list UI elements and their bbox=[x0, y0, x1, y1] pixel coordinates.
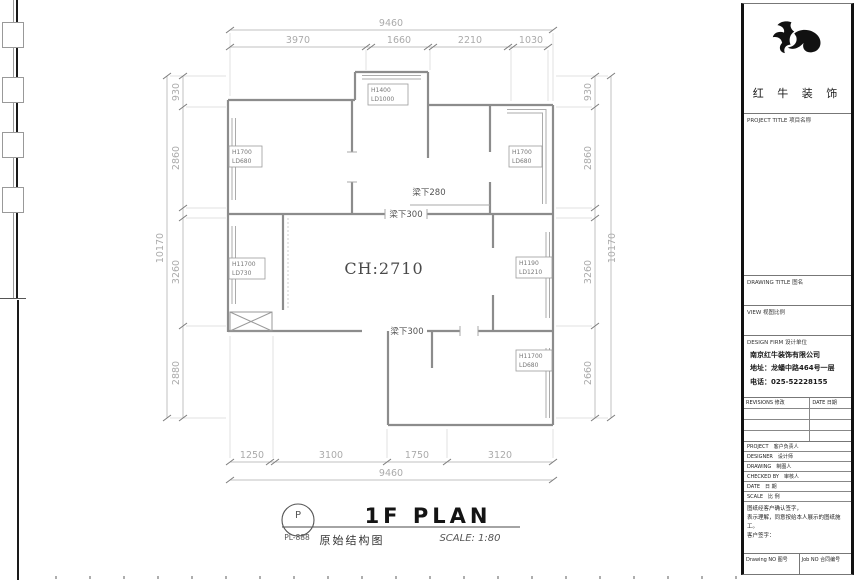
job-no-label: Job NO 合同编号 bbox=[800, 554, 851, 574]
beam-label-300-middle: 梁下300 bbox=[389, 210, 422, 220]
shaft-box bbox=[230, 312, 272, 331]
scale-label: SCALE: 1:80 bbox=[439, 533, 500, 544]
window-tag: H11700 LD680 bbox=[516, 350, 552, 371]
design-firm-label: DESIGN FIRM 设计单位 bbox=[744, 336, 851, 346]
note-line: 客户签字： bbox=[747, 532, 848, 541]
window-tag-height: H1190 bbox=[519, 260, 539, 267]
revision-row bbox=[744, 409, 851, 420]
dim-bottom-seg: 3100 bbox=[319, 450, 343, 461]
revisions-date-header: DATE 日期 bbox=[810, 398, 851, 408]
beam-edges bbox=[347, 152, 490, 336]
callout-letter: P bbox=[295, 510, 301, 521]
view-section: VIEW 视图比例 bbox=[744, 306, 851, 336]
drawing-no-label: Drawing NO 图号 bbox=[744, 554, 800, 574]
dim-bottom-seg: 3120 bbox=[488, 450, 512, 461]
dim-bottom-seg: 1250 bbox=[240, 450, 264, 461]
bull-logo-icon bbox=[770, 20, 826, 62]
dim-top-seg: 3970 bbox=[286, 35, 310, 46]
revision-row bbox=[744, 431, 851, 441]
dim-bottom-total: 9460 bbox=[379, 468, 403, 479]
dim-bottom-seg: 1750 bbox=[405, 450, 429, 461]
row-label-zh: 审核人 bbox=[784, 473, 799, 480]
dim-right-seg: 2860 bbox=[583, 146, 594, 170]
row-scale: SCALE 比 例 bbox=[744, 492, 851, 502]
drawing-name: 原始结构图 bbox=[320, 533, 385, 547]
window-tag-width: LD1000 bbox=[371, 96, 394, 103]
dim-left-seg: 2880 bbox=[171, 361, 182, 385]
row-label-en: SCALE bbox=[747, 494, 763, 500]
revision-row bbox=[744, 420, 851, 431]
window-tag-width: LD730 bbox=[232, 270, 252, 277]
company-name: 南京红牛装饰有限公司 bbox=[744, 346, 851, 360]
revisions-header-row: REVISIONS 修改 DATE 日期 bbox=[744, 398, 851, 409]
note-line: 图纸经客户确认签字， bbox=[747, 505, 848, 514]
window-tag: H11700 LD730 bbox=[229, 258, 265, 279]
footer-row: Drawing NO 图号 Job NO 合同编号 bbox=[744, 554, 851, 574]
dim-right-seg: 3260 bbox=[583, 260, 594, 284]
row-project: PROJECT 客户负责人 bbox=[744, 442, 851, 452]
plan-title: 1F PLAN bbox=[365, 504, 492, 528]
row-checked-by: CHECKED BY 审核人 bbox=[744, 472, 851, 482]
ceiling-height-label: CH:2710 bbox=[344, 259, 423, 278]
dim-left-seg: 2860 bbox=[171, 146, 182, 170]
row-label-zh: 客户负责人 bbox=[774, 443, 799, 450]
project-title-label: PROJECT TITLE 项目名称 bbox=[744, 114, 851, 124]
row-designer: DESIGNER 设计师 bbox=[744, 452, 851, 462]
row-label-en: DESIGNER bbox=[747, 454, 773, 460]
row-drawing: DRAWING 制图人 bbox=[744, 462, 851, 472]
window-tag: H1190 LD1210 bbox=[516, 257, 552, 278]
company-address: 地址：龙蟠中路464号一层 bbox=[744, 360, 851, 374]
dim-top-seg: 2210 bbox=[458, 35, 482, 46]
window-tag-height: H11700 bbox=[519, 353, 543, 360]
beam-label-300-bottom: 梁下300 bbox=[390, 327, 423, 337]
floor-plan: 9460 3970 1660 2210 1030 930 2860 3260 2… bbox=[0, 0, 740, 580]
row-label-zh: 日 期 bbox=[765, 483, 777, 490]
row-label-en: PROJECT bbox=[747, 444, 769, 450]
row-date: DATE 日 期 bbox=[744, 482, 851, 492]
dim-top-total: 9460 bbox=[379, 18, 403, 29]
beam-label-280: 梁下280 bbox=[412, 188, 445, 198]
window-tag-width: LD680 bbox=[512, 158, 532, 165]
window-tag-width: LD680 bbox=[232, 158, 252, 165]
window-tag: H1700 LD680 bbox=[229, 146, 262, 167]
drawing-title-section: DRAWING TITLE 图名 bbox=[744, 276, 851, 306]
row-label-zh: 制图人 bbox=[776, 463, 791, 470]
cad-drawing-sheet: 9460 3970 1660 2210 1030 930 2860 3260 2… bbox=[0, 0, 860, 580]
callout-code: PL-888 bbox=[284, 533, 310, 542]
note-line: 表示理解，同意按给本人展示的图纸施工。 bbox=[747, 514, 848, 532]
dim-right-seg: 2660 bbox=[583, 361, 594, 385]
plan-title-area: P PL-888 1F PLAN 原始结构图 SCALE: 1:80 bbox=[282, 504, 520, 547]
project-title-section: PROJECT TITLE 项目名称 bbox=[744, 114, 851, 276]
dim-top-seg: 1660 bbox=[387, 35, 411, 46]
design-firm-section: DESIGN FIRM 设计单位 南京红牛装饰有限公司 地址：龙蟠中路464号一… bbox=[744, 336, 851, 398]
view-label: VIEW 视图比例 bbox=[744, 306, 851, 316]
company-phone: 电话：025-52228155 bbox=[744, 373, 851, 387]
dim-left-seg: 930 bbox=[171, 83, 182, 101]
window-tag-height: H1700 bbox=[232, 149, 252, 156]
window-tag: H1400 LD1000 bbox=[368, 84, 408, 105]
walls bbox=[228, 72, 553, 425]
window-tag-height: H11700 bbox=[232, 261, 256, 268]
window-tag-height: H1700 bbox=[512, 149, 532, 156]
window-tag-width: LD1210 bbox=[519, 269, 542, 276]
window-tag-width: LD680 bbox=[519, 362, 539, 369]
window-tag: H1700 LD680 bbox=[509, 146, 542, 167]
dim-left-seg: 3260 bbox=[171, 260, 182, 284]
row-label-en: DATE bbox=[747, 484, 760, 490]
bottom-ruler-ticks bbox=[55, 576, 745, 579]
windows bbox=[232, 76, 550, 419]
revisions-header: REVISIONS 修改 bbox=[744, 398, 810, 408]
window-tag-height: H1400 bbox=[371, 87, 391, 94]
row-label-zh: 比 例 bbox=[768, 493, 780, 500]
dim-left-total: 10170 bbox=[155, 233, 166, 263]
dim-right-seg: 930 bbox=[583, 83, 594, 101]
revisions-table: REVISIONS 修改 DATE 日期 bbox=[744, 398, 851, 442]
dim-top-seg: 1030 bbox=[519, 35, 543, 46]
dim-right-total: 10170 bbox=[607, 233, 618, 263]
logo-section: 红 牛 装 饰 bbox=[744, 4, 851, 114]
drawing-title-label: DRAWING TITLE 图名 bbox=[744, 276, 851, 286]
row-label-en: CHECKED BY bbox=[747, 474, 779, 480]
row-label-zh: 设计师 bbox=[778, 453, 793, 460]
brand-name: 红 牛 装 饰 bbox=[744, 85, 851, 101]
client-note: 图纸经客户确认签字， 表示理解，同意按给本人展示的图纸施工。 客户签字： bbox=[744, 502, 851, 554]
title-block: 红 牛 装 饰 PROJECT TITLE 项目名称 DRAWING TITLE… bbox=[741, 3, 854, 575]
row-label-en: DRAWING bbox=[747, 464, 771, 470]
